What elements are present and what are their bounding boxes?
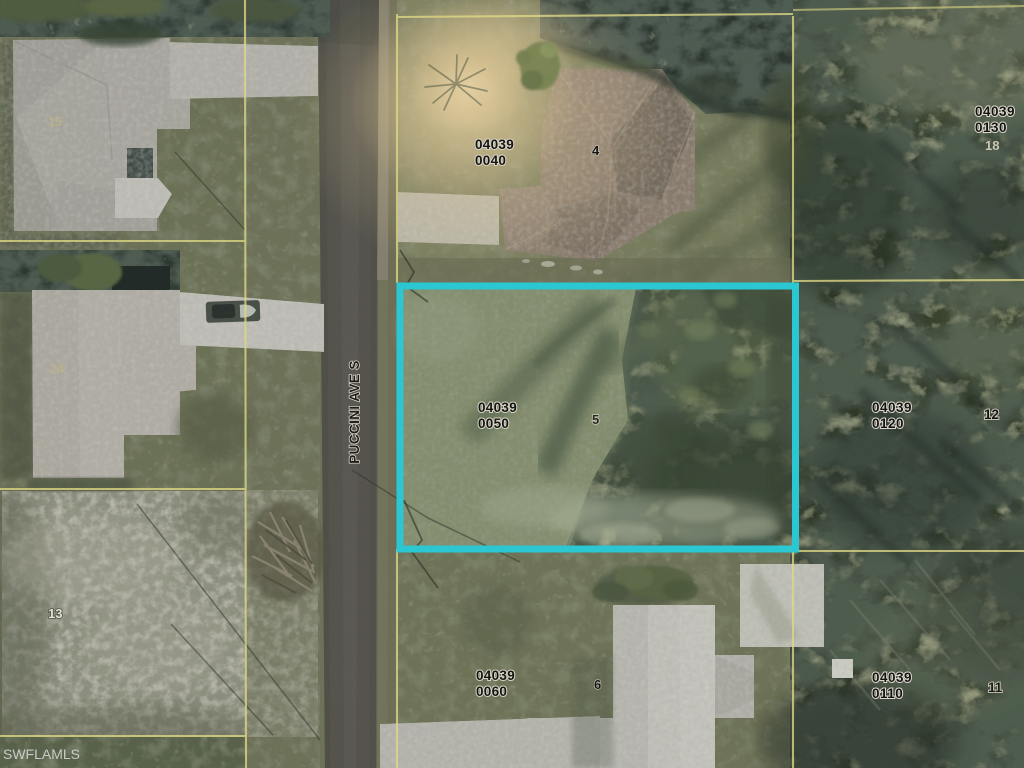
svg-text:SWFLAMLS: SWFLAMLS — [3, 746, 80, 762]
